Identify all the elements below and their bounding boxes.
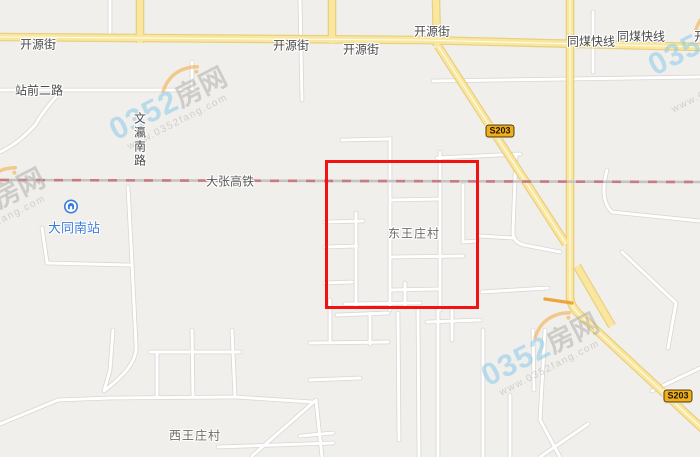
map-canvas[interactable]: 0352房网www.0352fang.com0352房网www.0352fang…	[0, 0, 700, 457]
road-network	[0, 0, 700, 457]
